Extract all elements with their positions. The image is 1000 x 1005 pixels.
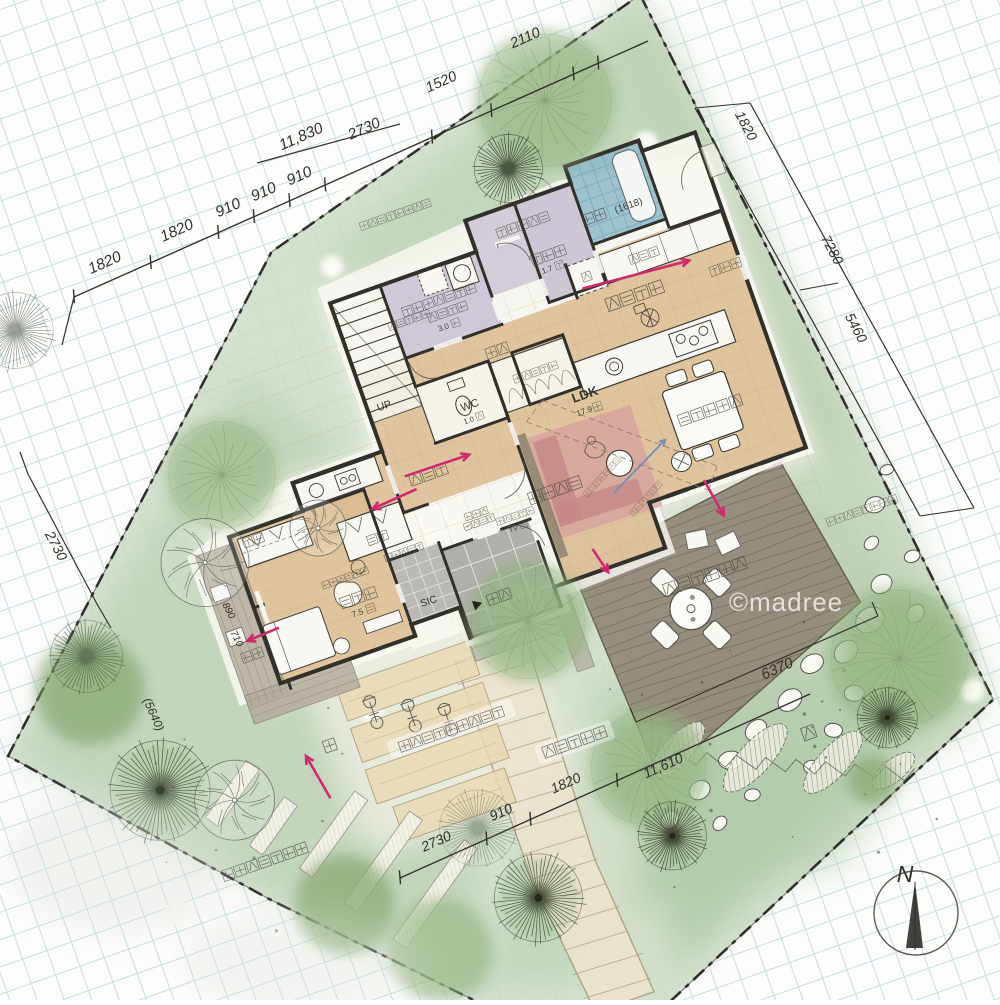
svg-text:N: N xyxy=(897,861,914,887)
svg-text:©madree: ©madree xyxy=(729,587,843,617)
